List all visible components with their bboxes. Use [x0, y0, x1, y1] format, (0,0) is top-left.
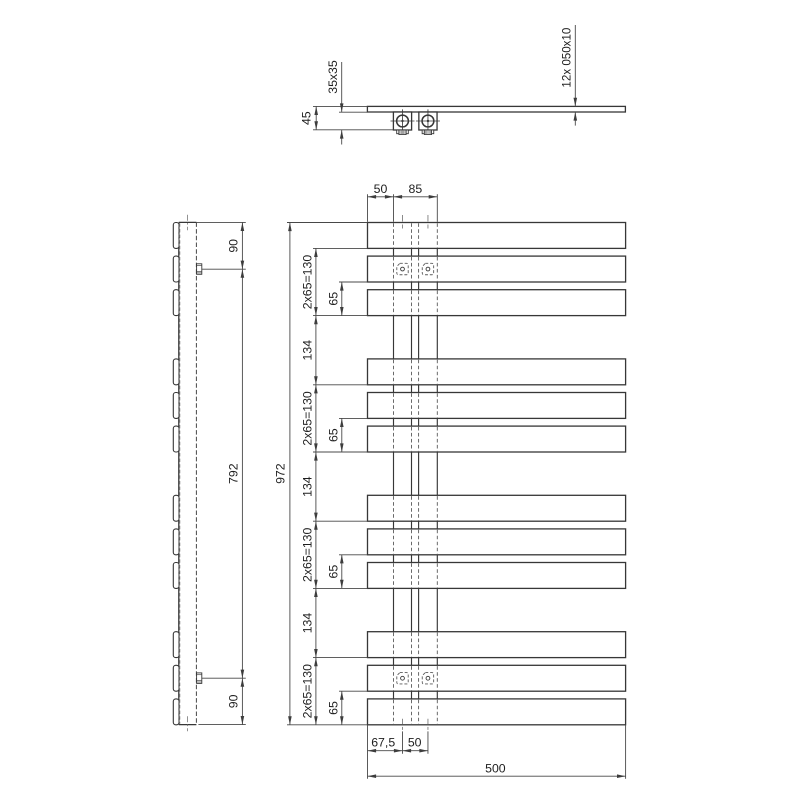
svg-text:35x35: 35x35	[326, 60, 340, 94]
svg-text:500: 500	[485, 761, 506, 775]
svg-text:65: 65	[326, 292, 340, 306]
svg-text:2x65=130: 2x65=130	[300, 391, 314, 446]
svg-text:65: 65	[326, 428, 340, 442]
svg-text:65: 65	[326, 701, 340, 715]
svg-text:134: 134	[300, 476, 314, 497]
svg-text:50: 50	[374, 182, 388, 196]
svg-text:972: 972	[274, 463, 288, 484]
svg-text:12x 050x10: 12x 050x10	[560, 28, 573, 88]
svg-text:85: 85	[409, 182, 423, 196]
svg-text:45: 45	[300, 111, 314, 125]
svg-text:2x65=130: 2x65=130	[300, 664, 314, 719]
svg-text:792: 792	[226, 463, 240, 484]
svg-text:2x65=130: 2x65=130	[300, 527, 314, 582]
svg-text:50: 50	[408, 736, 422, 750]
svg-text:65: 65	[326, 565, 340, 579]
svg-text:90: 90	[226, 239, 240, 253]
svg-text:134: 134	[300, 613, 314, 634]
svg-text:134: 134	[300, 340, 314, 361]
svg-text:67,5: 67,5	[371, 736, 395, 750]
svg-text:90: 90	[226, 694, 240, 708]
svg-text:2x65=130: 2x65=130	[300, 255, 314, 310]
